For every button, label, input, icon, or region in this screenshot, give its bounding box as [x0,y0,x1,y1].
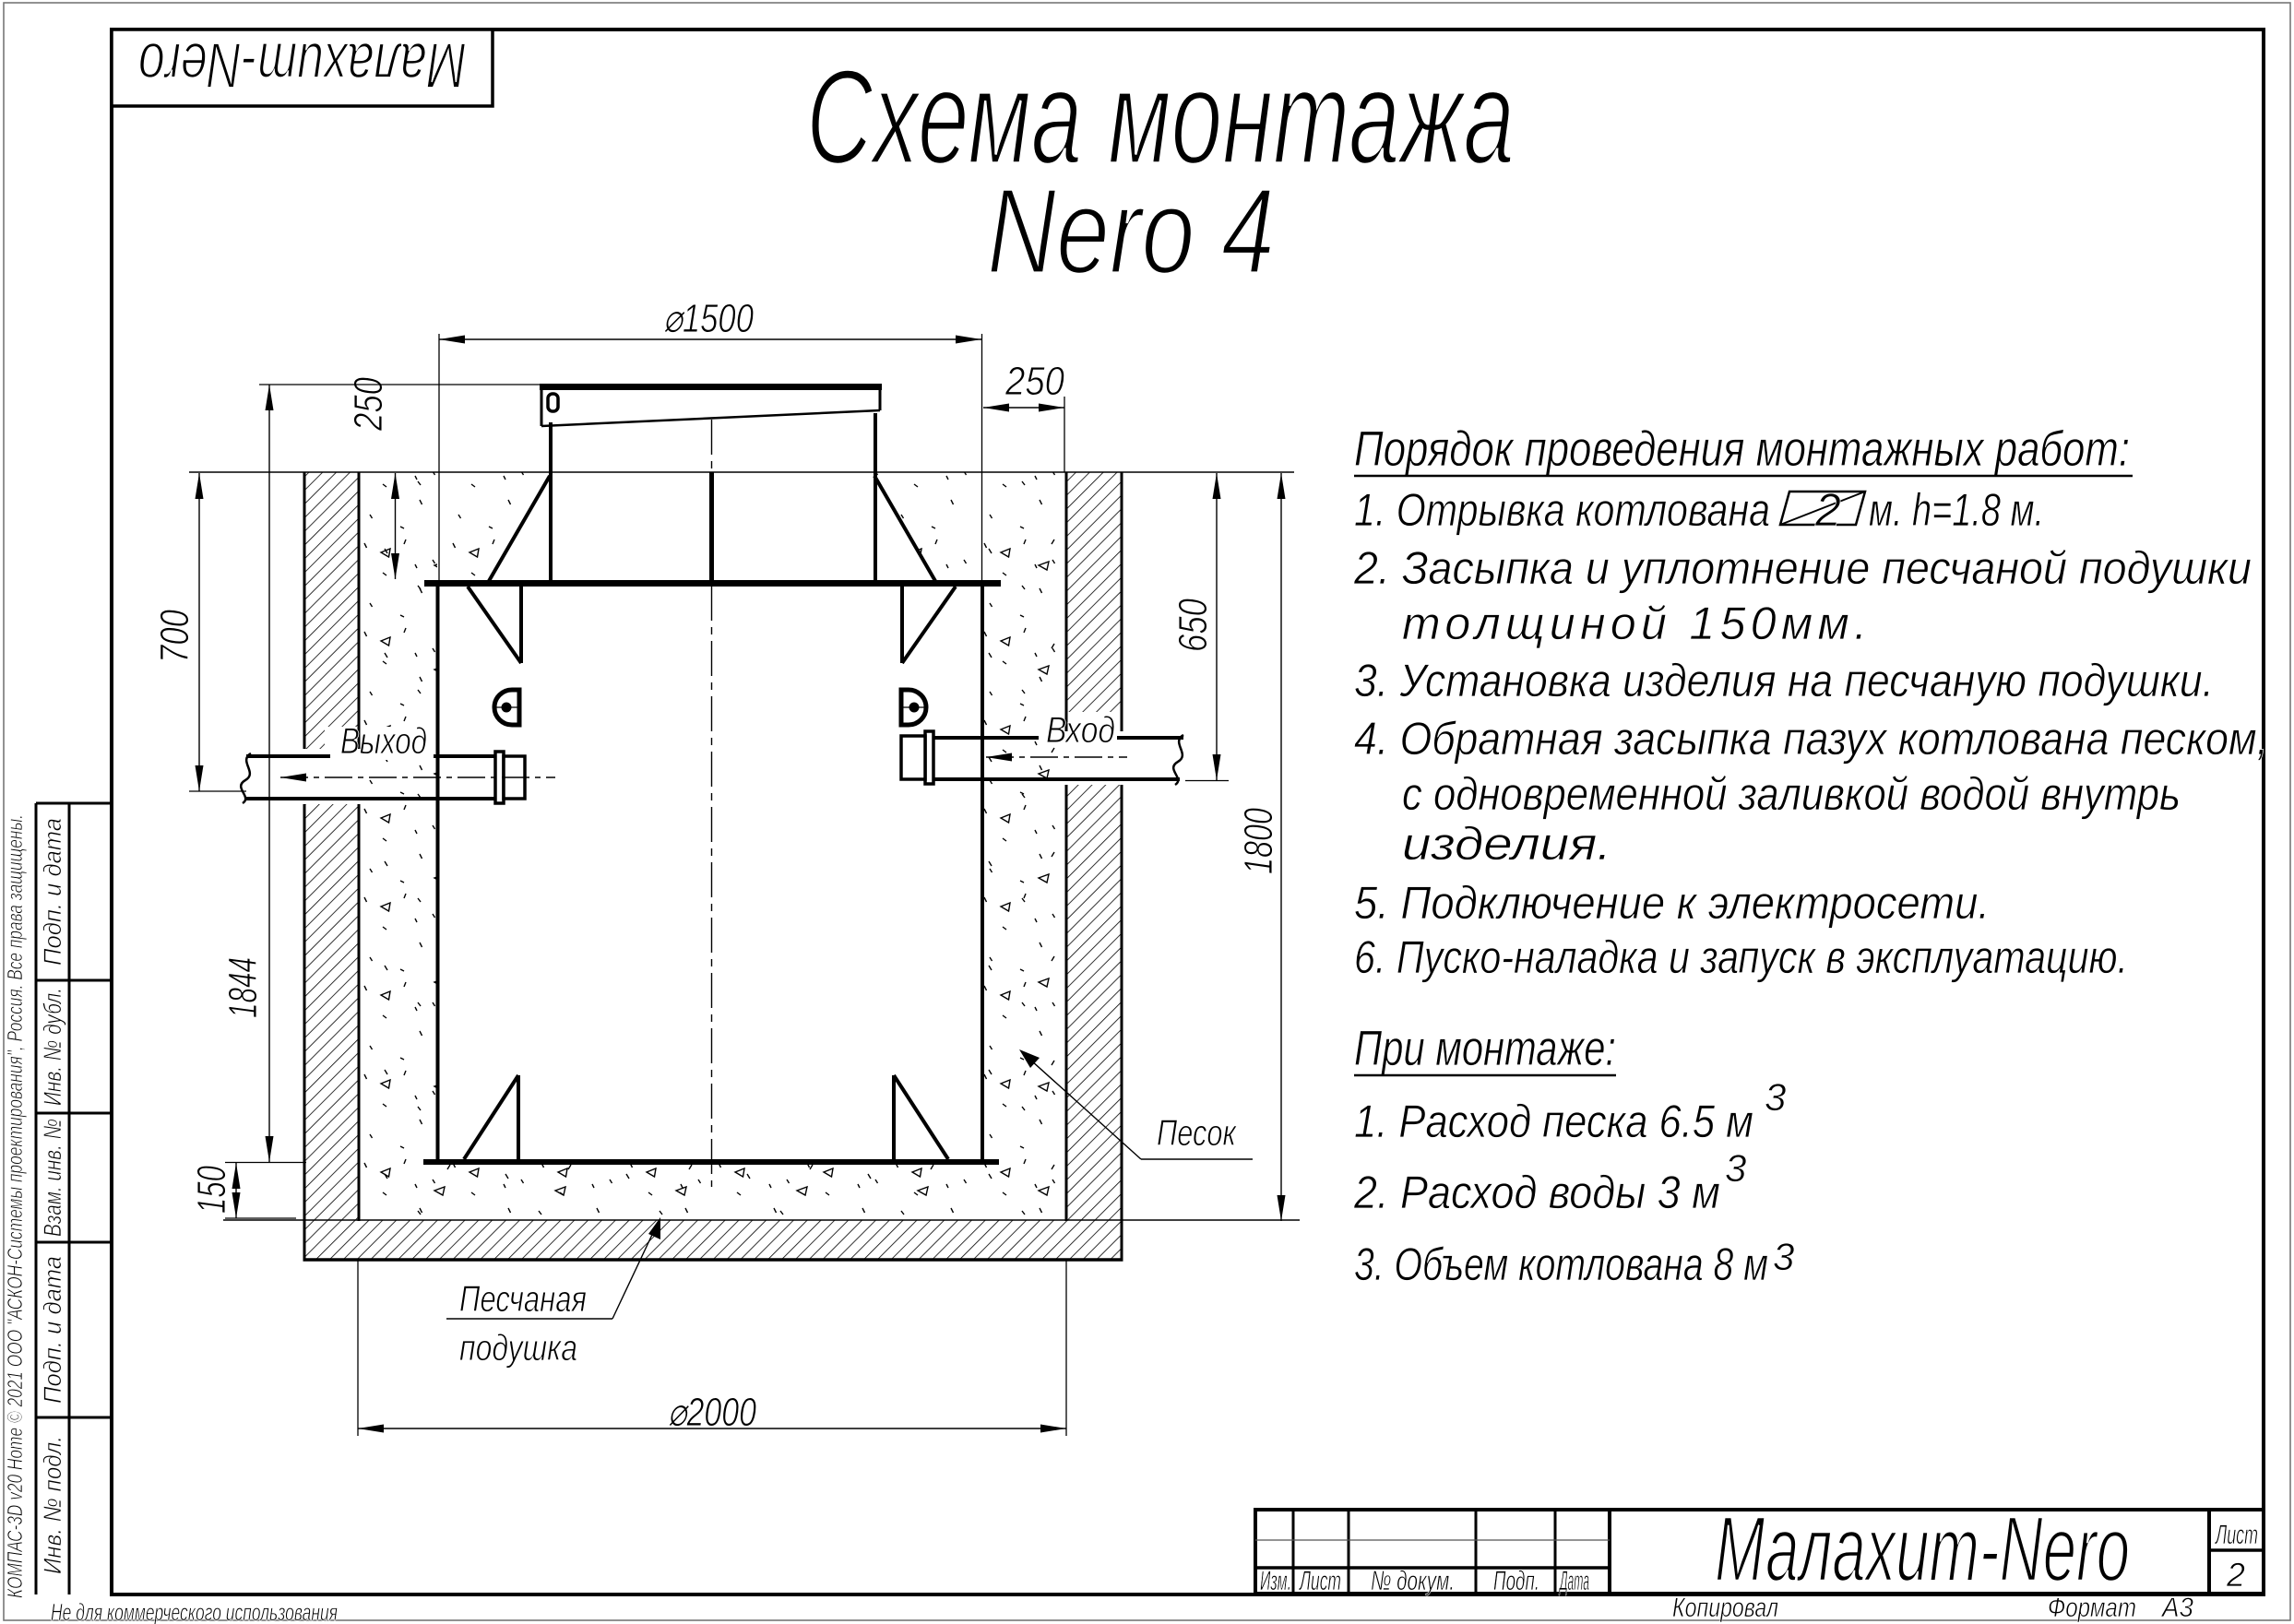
svg-text:КОМПАС-3D v20 Home © 2021 ООО: КОМПАС-3D v20 Home © 2021 ООО "АСКОН-Сис… [3,814,27,1598]
svg-text:650: 650 [1171,599,1216,652]
svg-text:с одновременной заливкой водой: с одновременной заливкой водой внутрь [1402,768,2181,820]
svg-text:3: 3 [1765,1075,1786,1119]
svg-text:подушка: подушка [459,1328,577,1369]
svg-text:Песок: Песок [1157,1113,1238,1154]
svg-text:1. Расход песка 6.5 м: 1. Расход песка 6.5 м [1354,1096,1753,1147]
svg-text:Nero 4: Nero 4 [987,163,1275,299]
svg-text:При монтаже:: При монтаже: [1354,1021,1616,1076]
svg-text:1. Отрывка котлована: 1. Отрывка котлована [1354,484,1770,536]
svg-text:Взам. инв. №: Взам. инв. № [39,1119,66,1237]
svg-text:150: 150 [189,1166,234,1214]
svg-text:3. Объем котлована 8 м: 3. Объем котлована 8 м [1354,1239,1768,1290]
svg-text:м. h=1.8 м.: м. h=1.8 м. [1869,484,2044,536]
svg-text:Подп. и дата: Подп. и дата [39,818,66,966]
svg-text:А3: А3 [2160,1593,2193,1623]
svg-text:№ докум.: № докум. [1371,1566,1455,1596]
svg-text:5. Подключение к электросети.: 5. Подключение к электросети. [1354,877,1990,929]
svg-text:Инв. № подл.: Инв. № подл. [39,1436,66,1574]
svg-text:1800: 1800 [1236,808,1281,874]
svg-text:3: 3 [1725,1146,1746,1190]
svg-text:Подп.: Подп. [1493,1566,1539,1596]
svg-text:Порядок проведения монтажных р: Порядок проведения монтажных работ: [1354,421,2130,477]
svg-text:1844: 1844 [220,957,266,1018]
svg-text:2. Расход воды 3 м: 2. Расход воды 3 м [1353,1167,1720,1218]
svg-text:Лист: Лист [2215,1520,2258,1550]
svg-text:Изм.: Изм. [1260,1566,1291,1596]
svg-text:Копировал: Копировал [1672,1593,1778,1623]
svg-text:Подп. и дата: Подп. и дата [39,1256,66,1404]
svg-text:Вход: Вход [1046,710,1115,751]
svg-text:2. Засыпка и уплотнение песчан: 2. Засыпка и уплотнение песчаной подушки [1353,542,2252,594]
svg-text:Не для коммерческого использов: Не для коммерческого использования [51,1598,338,1624]
svg-text:изделия.: изделия. [1402,818,1611,870]
svg-text:Выход: Выход [340,721,427,762]
svg-text:Инв. № дубл.: Инв. № дубл. [39,988,66,1106]
svg-text:4. Обратная засыпка пазух котл: 4. Обратная засыпка пазух котлована песк… [1354,713,2268,765]
svg-text:Дата: Дата [1559,1566,1589,1596]
svg-text:Лист: Лист [1299,1566,1341,1596]
svg-text:Малахит-Nero: Малахит-Nero [138,30,467,101]
svg-text:Малахит-Nero: Малахит-Nero [1715,1498,2130,1601]
svg-text:250: 250 [1004,359,1064,404]
svg-text:3. Установка изделия на песчан: 3. Установка изделия на песчаную подушки… [1354,655,2214,706]
svg-text:3: 3 [1773,1235,1794,1278]
svg-text:2: 2 [1814,484,1841,536]
svg-text:700: 700 [152,610,197,663]
svg-text:Песчаная: Песчаная [459,1279,587,1320]
svg-text:6. Пуско-наладка и запуск в эк: 6. Пуско-наладка и запуск в эксплуатацию… [1354,931,2128,983]
svg-text:Формат: Формат [2048,1593,2136,1623]
svg-text:⌀1500: ⌀1500 [663,296,754,341]
svg-text:⌀2000: ⌀2000 [668,1390,756,1435]
svg-text:2: 2 [2226,1556,2245,1594]
